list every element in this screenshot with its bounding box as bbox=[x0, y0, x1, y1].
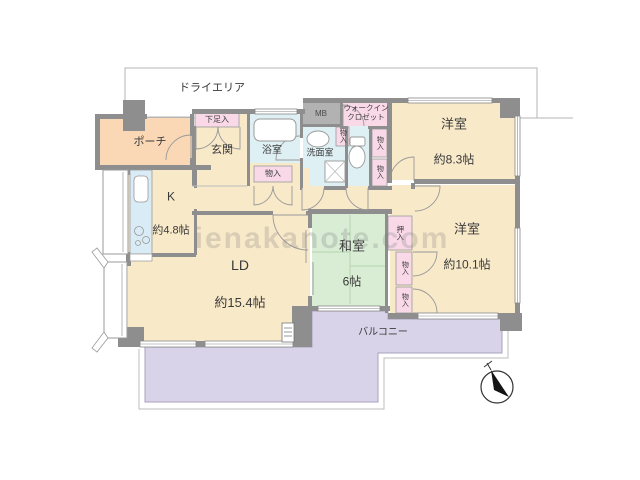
wall bbox=[345, 126, 348, 188]
wall bbox=[300, 114, 303, 138]
wall bbox=[292, 306, 312, 347]
shoe-cabinet-box bbox=[195, 113, 239, 127]
window-bay-living bbox=[92, 248, 127, 352]
window bbox=[255, 109, 297, 114]
casement-window-icon bbox=[92, 332, 108, 352]
window bbox=[515, 228, 520, 303]
western-room-1-floor bbox=[392, 103, 515, 180]
wall-pillar bbox=[123, 100, 145, 131]
wall bbox=[247, 114, 250, 168]
oshiire-box bbox=[388, 216, 412, 250]
wall bbox=[324, 186, 346, 190]
window bbox=[418, 313, 498, 319]
wall bbox=[414, 179, 515, 184]
wall bbox=[303, 124, 343, 127]
wall bbox=[385, 209, 388, 313]
kitchen-cabinet bbox=[130, 254, 152, 261]
floor-plan-drawing bbox=[0, 0, 640, 480]
window bbox=[318, 306, 380, 311]
window bbox=[140, 341, 196, 347]
storage-box-western-1 bbox=[396, 252, 412, 285]
wall bbox=[369, 126, 372, 188]
wall bbox=[194, 209, 197, 255]
floor-plan: ドライエリア ポーチ 玄関 下足入 浴室 物入 MB 洗面室 物入 ウォークイン… bbox=[0, 0, 640, 480]
escape-hatch-icon bbox=[282, 323, 294, 342]
wall bbox=[387, 98, 392, 183]
wall bbox=[247, 163, 250, 186]
wall bbox=[303, 98, 393, 103]
kitchen-sink-icon bbox=[134, 176, 148, 202]
wall bbox=[192, 211, 273, 215]
wall bbox=[300, 158, 303, 188]
wall bbox=[308, 213, 312, 228]
wall bbox=[308, 209, 392, 214]
storage-box-western-2 bbox=[396, 287, 412, 313]
meter-box bbox=[303, 102, 340, 126]
storage-box-toilet-2 bbox=[372, 159, 387, 186]
washbasin-icon bbox=[307, 131, 329, 147]
storage-box-toilet-1 bbox=[372, 129, 387, 157]
window bbox=[515, 116, 520, 176]
window-bay-kitchen bbox=[103, 170, 128, 254]
wall bbox=[194, 168, 197, 188]
walk-in-closet-floor bbox=[343, 102, 389, 126]
wall bbox=[411, 183, 415, 189]
window bbox=[205, 341, 293, 347]
washer-pan-icon bbox=[325, 161, 345, 182]
window bbox=[408, 98, 492, 103]
wall bbox=[368, 186, 392, 190]
wall bbox=[95, 114, 100, 170]
bathtub-icon bbox=[254, 119, 296, 141]
toilet-icon bbox=[349, 137, 365, 168]
storage-box-bath bbox=[254, 166, 292, 182]
compass-icon bbox=[481, 361, 513, 403]
wall bbox=[308, 296, 312, 308]
